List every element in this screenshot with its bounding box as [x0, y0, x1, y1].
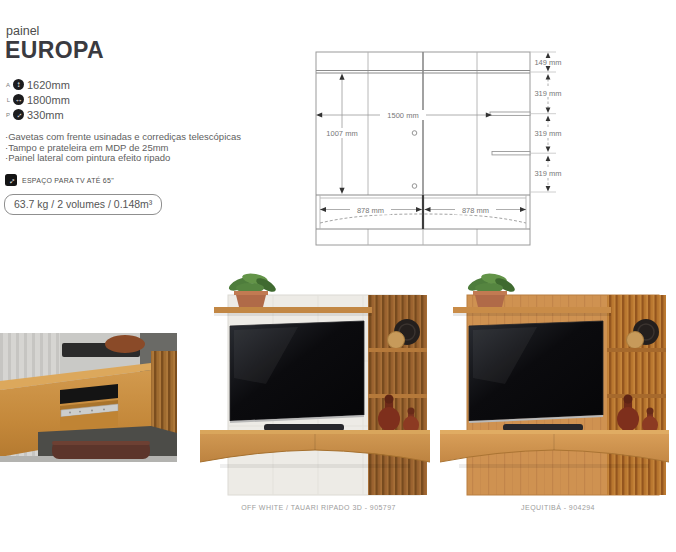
tv-size-badge: ↔ ESPAÇO PARA TV ATÉ 65" [5, 174, 114, 186]
spec-sheet-page: painel EUROPA A ↕ 1620mm L ↔ 1800mm P ↔ … [0, 0, 676, 552]
variant-caption-jequitiba: JEQUITIBÁ - 904294 [440, 504, 676, 511]
svg-text:878 mm: 878 mm [462, 206, 489, 215]
feature-list: ·Gavetas com frente usinadas e corrediça… [5, 132, 241, 164]
svg-text:1500 mm: 1500 mm [387, 111, 418, 120]
spec-height-value: 1620mm [27, 79, 70, 91]
cable-hole [412, 184, 417, 189]
logistics-pill: 63.7 kg / 2 volumes / 0.148m³ [4, 194, 162, 215]
product-title: EUROPA [5, 37, 104, 64]
product-category: painel [6, 24, 39, 38]
depth-arrows-icon: ↔ [13, 109, 24, 120]
width-arrows-icon: ↔ [13, 94, 24, 105]
feature-item: ·Painel lateral com pintura efeito ripad… [5, 153, 241, 164]
product-render-off-white [200, 266, 437, 502]
svg-text:319 mm: 319 mm [534, 89, 561, 98]
feature-item: ·Gavetas com frente usinadas e corrediça… [5, 132, 241, 143]
svg-text:1007 mm: 1007 mm [326, 129, 357, 138]
svg-text:319 mm: 319 mm [534, 169, 561, 178]
spec-depth-key: P [5, 112, 10, 118]
technical-drawing: 1007 mm 1500 mm 149 mm 319 mm [310, 45, 576, 250]
spec-depth-value: 330mm [27, 109, 64, 121]
dim-319-a: 319 mm [531, 74, 565, 113]
dimension-specs: A ↕ 1620mm L ↔ 1800mm P ↔ 330mm [5, 79, 70, 120]
spec-height-key: A [5, 82, 10, 88]
height-arrows-icon: ↕ [13, 79, 24, 90]
spec-width-key: L [5, 97, 10, 103]
side-shelf-tab [490, 112, 530, 115]
dim-149: 149 mm [534, 53, 561, 72]
spec-depth: P ↔ 330mm [5, 109, 70, 120]
side-shelf-tab [492, 152, 530, 155]
detail-photo-drawer-rail [0, 333, 177, 462]
tv-size-arrow-icon: ↔ [5, 174, 17, 186]
variant-caption-off-white: OFF WHITE / TAUARI RIPADO 3D - 905797 [200, 504, 437, 511]
cable-hole [412, 131, 417, 136]
svg-text:319 mm: 319 mm [534, 129, 561, 138]
svg-text:878 mm: 878 mm [357, 206, 384, 215]
svg-text:149 mm: 149 mm [534, 58, 561, 67]
spec-height: A ↕ 1620mm [5, 79, 70, 90]
dim-319-b: 319 mm [531, 116, 565, 153]
tv-size-label: ESPAÇO PARA TV ATÉ 65" [22, 177, 114, 184]
spec-width-value: 1800mm [27, 94, 70, 106]
spec-width: L ↔ 1800mm [5, 94, 70, 105]
product-render-jequitiba [440, 266, 676, 502]
dim-319-c: 319 mm [531, 156, 565, 192]
